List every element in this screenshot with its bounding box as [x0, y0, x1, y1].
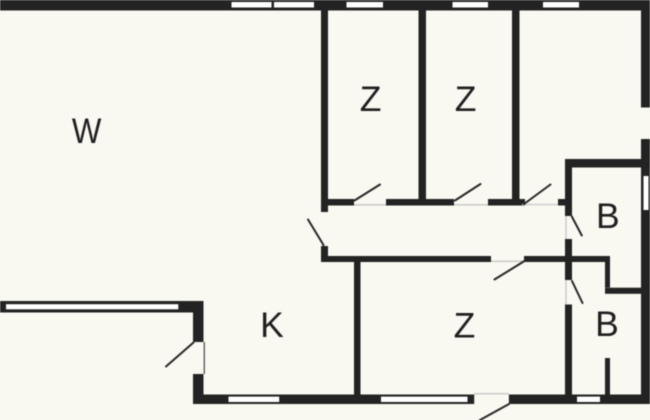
svg-text:W: W [72, 111, 102, 151]
svg-text:B: B [596, 196, 620, 236]
svg-text:Z: Z [454, 305, 476, 345]
svg-text:Z: Z [455, 79, 477, 119]
svg-text:K: K [260, 305, 284, 345]
svg-text:B: B [595, 304, 619, 344]
svg-text:Z: Z [360, 79, 382, 119]
